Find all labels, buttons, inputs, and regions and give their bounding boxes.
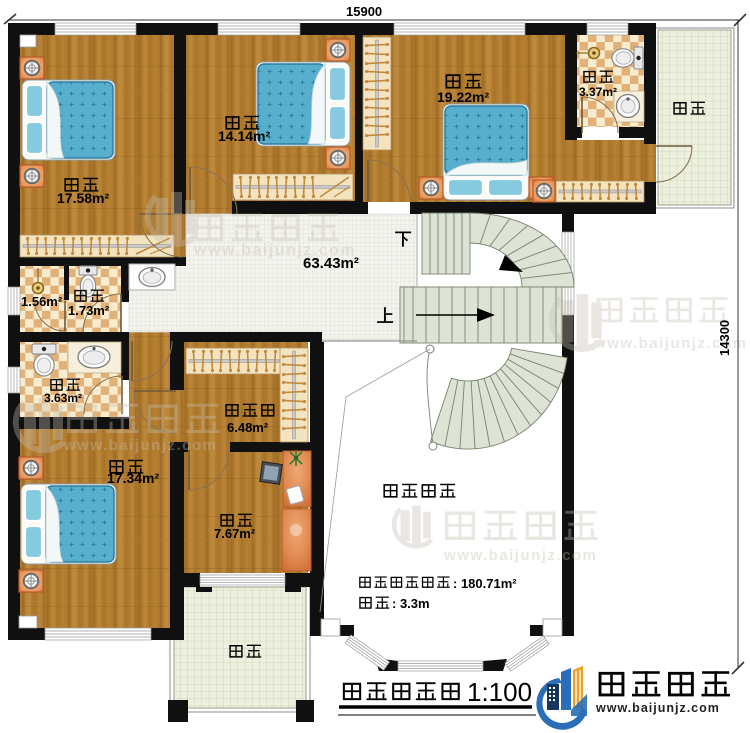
svg-text:www.baijunjz.com: www.baijunjz.com	[443, 547, 597, 564]
svg-text:: 180.71m²: : 180.71m²	[453, 576, 517, 591]
svg-text:14300: 14300	[717, 320, 732, 356]
svg-text:1:100: 1:100	[467, 677, 532, 707]
svg-text:3.37m²: 3.37m²	[579, 85, 617, 99]
svg-text:14.14m²: 14.14m²	[218, 128, 270, 144]
svg-text:15900: 15900	[346, 4, 382, 19]
svg-text:19.22m²: 19.22m²	[437, 89, 489, 105]
svg-text:1.56m²: 1.56m²	[21, 294, 63, 309]
svg-text:1.73m²: 1.73m²	[68, 303, 110, 318]
svg-text:17.34m²: 17.34m²	[107, 470, 159, 486]
svg-text:7.67m²: 7.67m²	[214, 526, 256, 541]
svg-text:6.48m²: 6.48m²	[227, 420, 269, 435]
svg-text:3.63m²: 3.63m²	[44, 391, 82, 405]
svg-text:17.58m²: 17.58m²	[57, 190, 109, 206]
svg-text:63.43m²: 63.43m²	[303, 255, 359, 272]
svg-text:: 3.3m: : 3.3m	[392, 596, 430, 611]
svg-text:www.baijunjz.com: www.baijunjz.com	[595, 701, 720, 715]
svg-text:www.baijunjz.com: www.baijunjz.com	[63, 437, 217, 454]
